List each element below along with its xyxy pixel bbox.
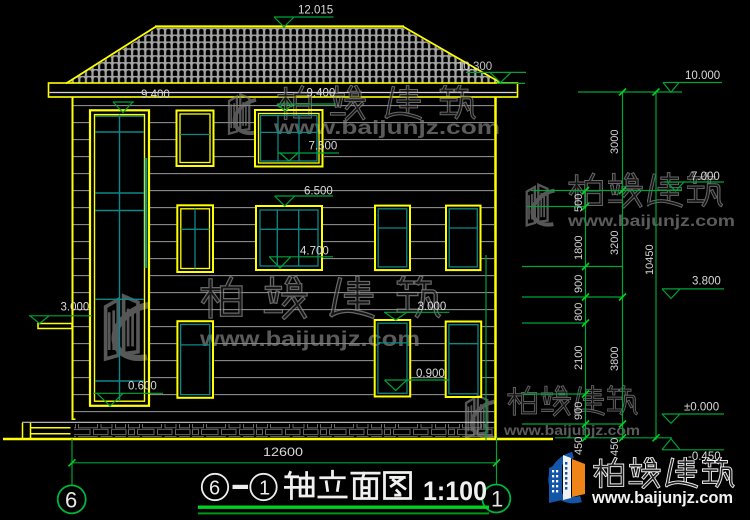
svg-text:6: 6 [65, 488, 77, 513]
svg-text:12600: 12600 [263, 447, 303, 459]
svg-text:www.baijunjz.com: www.baijunjz.com [273, 118, 500, 139]
svg-text:10.300: 10.300 [457, 61, 492, 73]
svg-text:10450: 10450 [644, 244, 656, 275]
svg-text:450: 450 [573, 437, 585, 455]
svg-text:www.baijunjz.com: www.baijunjz.com [591, 489, 733, 507]
svg-text:900: 900 [573, 275, 585, 293]
svg-text:3.800: 3.800 [692, 276, 721, 288]
svg-text:9.400: 9.400 [307, 88, 336, 100]
svg-text:4.700: 4.700 [300, 246, 329, 258]
svg-text:6: 6 [209, 478, 220, 500]
svg-text:900: 900 [573, 402, 585, 420]
svg-text:7.500: 7.500 [309, 141, 338, 153]
svg-text:2100: 2100 [573, 346, 585, 370]
svg-text:±0.000: ±0.000 [684, 402, 719, 414]
svg-text:3.000: 3.000 [61, 302, 90, 314]
svg-text:800: 800 [573, 303, 585, 321]
svg-text:0.600: 0.600 [128, 381, 157, 393]
svg-text:7.000: 7.000 [691, 171, 720, 183]
svg-text:1:100: 1:100 [423, 476, 487, 506]
svg-text:0.900: 0.900 [416, 368, 445, 380]
svg-text:3800: 3800 [609, 347, 621, 371]
svg-text:500: 500 [573, 194, 585, 212]
svg-text:10.000: 10.000 [685, 70, 720, 82]
svg-text:3000: 3000 [609, 130, 621, 154]
svg-text:1800: 1800 [573, 236, 585, 260]
svg-text:www.baijunjz.com: www.baijunjz.com [567, 213, 735, 230]
svg-text:3200: 3200 [609, 231, 621, 255]
svg-text:1: 1 [491, 487, 503, 512]
svg-text:450: 450 [609, 438, 621, 456]
svg-text:12.015: 12.015 [298, 5, 333, 17]
svg-text:3.000: 3.000 [418, 301, 447, 313]
svg-text:1: 1 [259, 478, 270, 500]
svg-text:www.baijunjz.com: www.baijunjz.com [199, 328, 420, 351]
svg-text:9.400: 9.400 [141, 89, 170, 101]
